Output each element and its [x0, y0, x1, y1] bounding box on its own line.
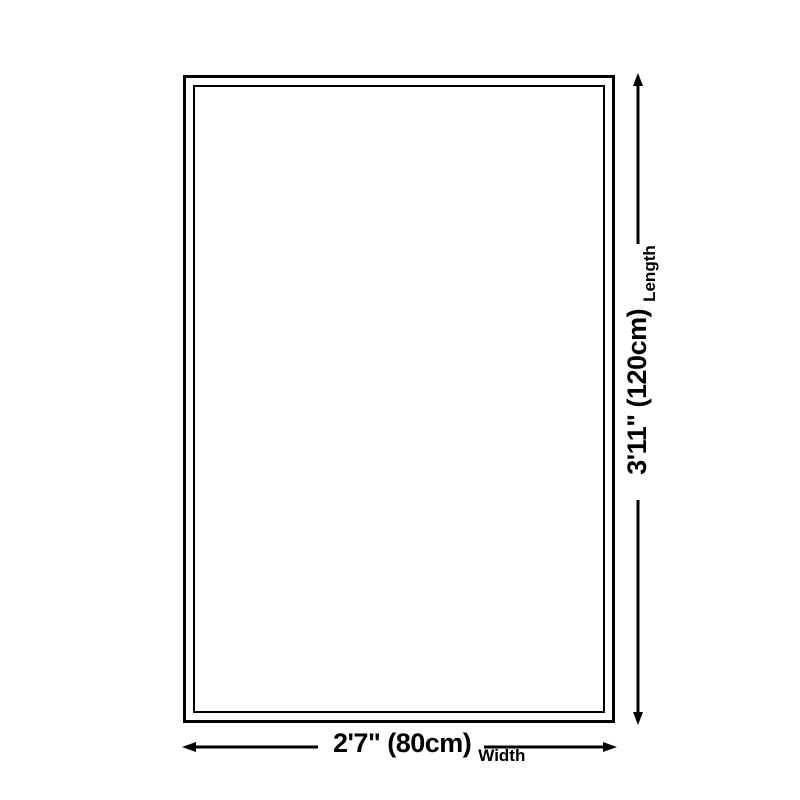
length-arrow-down-icon — [633, 500, 643, 725]
width-dimension: 2'7" (80cm)Width — [333, 730, 525, 764]
width-arrow-left-icon — [182, 742, 318, 752]
length-dimension: 3'11" (120cm)Length — [624, 245, 658, 475]
length-value: 3'11" (120cm) — [622, 309, 652, 475]
dimension-arrows — [0, 0, 800, 800]
length-arrow-up-icon — [633, 73, 643, 244]
width-value: 2'7" (80cm) — [333, 728, 471, 758]
size-diagram: 3'11" (120cm)Length 2'7" (80cm)Width — [0, 0, 800, 800]
length-label: Length — [640, 245, 659, 302]
width-label: Width — [478, 746, 525, 765]
